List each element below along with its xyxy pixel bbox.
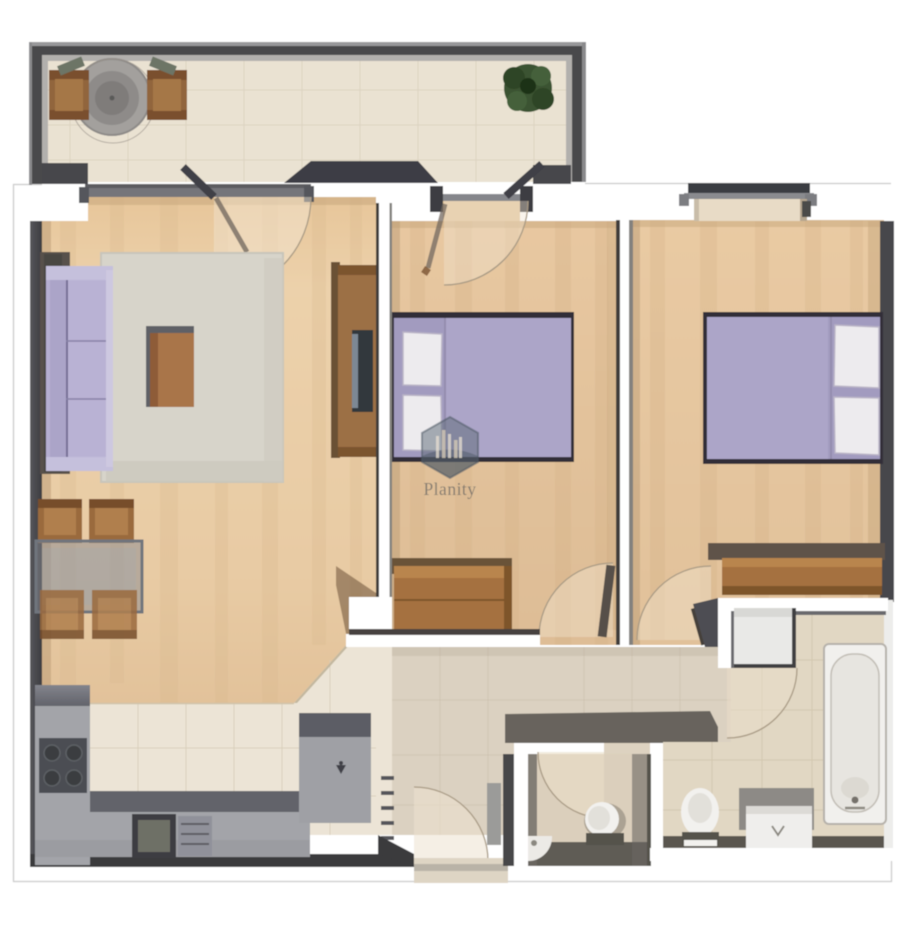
svg-text:Planity: Planity: [423, 479, 476, 499]
